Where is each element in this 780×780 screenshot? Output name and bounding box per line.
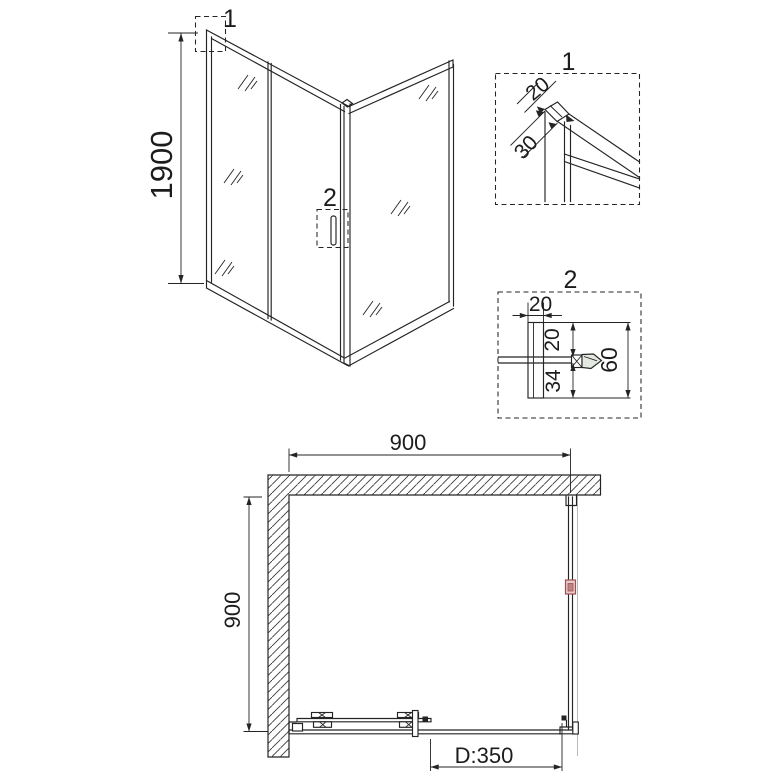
door-opening-label: D:350 [455,743,514,768]
top-wall-clamp [566,496,577,506]
sliding-door-track [289,711,578,737]
detail-1-title: 1 [562,48,576,76]
technical-drawing-page: 1900 1 2 1 20 [0,0,780,780]
corner-post [342,100,353,367]
plan-view: 900 900 D:350 [220,430,601,771]
detail-1-rail-lines [558,114,640,188]
depth-dimension-label: 900 [220,592,245,629]
detail-1-depth-dimension: 30 [510,110,558,164]
shower-enclosure-drawing: 1900 1 2 1 20 [0,0,780,780]
perspective-view: 1900 1 2 [144,5,454,366]
door-stopper [423,717,429,723]
detail-callout-1: 1 [196,5,237,52]
door-end-strip [413,711,419,737]
detail-2-width-label: 20 [529,293,552,316]
detail-1-depth-label: 30 [510,131,543,164]
wall-bracket [566,580,576,594]
detail-2-top-offset-dimension: 20 [541,323,576,358]
detail-2-width-dimension: 20 [513,293,563,322]
detail-1-vertical-lines [545,112,571,202]
detail-1-width-label: 20 [521,73,554,106]
detail-2-bottom-offset-label: 34 [542,369,565,393]
detail-2-total-dimension: 60 [596,323,631,399]
detail-view-1: 1 20 30 [496,48,640,205]
detail-2-total-label: 60 [596,347,622,373]
height-dimension-label: 1900 [144,131,179,200]
detail-callout-2-label: 2 [323,184,337,212]
side-panel-plan [566,496,577,730]
detail-callout-1-label: 1 [223,5,237,33]
door-handle [331,216,336,245]
detail-view-2: 2 20 20 [498,266,641,418]
gasket-wedge [566,115,575,123]
detail-2-top-offset-label: 20 [541,328,564,351]
depth-dimension: 900 [220,497,268,732]
track-right-end [560,716,578,735]
side-panel-frame [345,60,454,366]
detail-2-title: 2 [564,266,578,294]
width-dimension-label: 900 [390,430,427,455]
detail-2-bottom-offset-dimension: 34 [542,363,576,398]
height-dimension: 1900 [144,33,204,284]
roller-assembly [312,713,333,728]
